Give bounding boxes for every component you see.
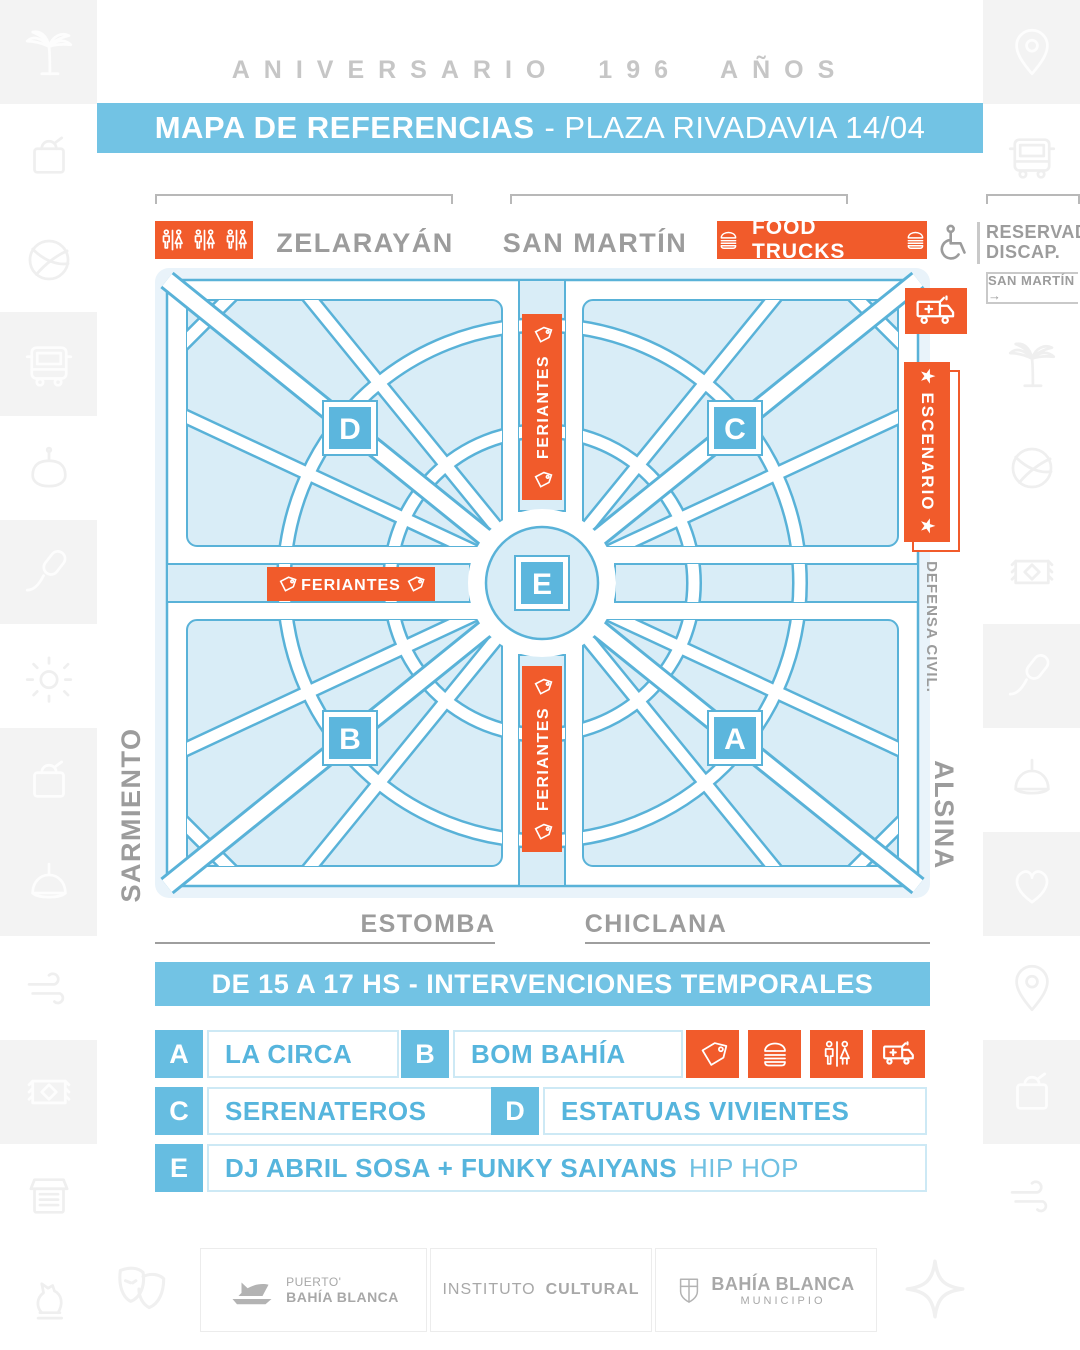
feriantes-banner-top: FERIANTES: [522, 314, 562, 500]
rail-tile: [983, 104, 1080, 208]
street-label-estomba: ESTOMBA: [323, 910, 533, 939]
shopping-bag-icon: [1003, 1063, 1061, 1121]
bus-icon: [1003, 127, 1061, 185]
san-martin-direction-note: SAN MARTÍN →: [986, 272, 1078, 304]
rail-tile: [983, 1040, 1080, 1144]
logo-bahia-blanca-municipio: BAHÍA BLANCA MUNICIPIO: [655, 1248, 877, 1332]
street-label-chiclana: CHICLANA: [551, 910, 761, 939]
anniversary-kicker: ANIVERSARIO 196 AÑOS: [97, 56, 983, 85]
port-ship-logo-icon: [228, 1273, 276, 1307]
street-underline: [155, 942, 495, 944]
palm-tree-icon: [20, 23, 78, 81]
rail-tile: [0, 0, 97, 104]
street-bracket: [155, 194, 453, 204]
rail-tile: [0, 728, 97, 832]
microphone-icon: [20, 543, 78, 601]
shopping-bag-icon: [20, 127, 78, 185]
shopping-bag-icon: [20, 751, 78, 809]
bus-icon: [20, 335, 78, 393]
street-label-alsina: ALSINA: [929, 665, 959, 965]
ambulance-icon: [882, 1038, 916, 1070]
municipal-crest-icon: [677, 1275, 701, 1305]
cooking-pot-icon: [20, 439, 78, 497]
rail-tile: [0, 104, 97, 208]
stage-label: ★ ESCENARIO ★: [917, 369, 937, 536]
burger-icon: [717, 228, 740, 252]
svg-text:D: D: [339, 413, 361, 446]
street-bracket: [986, 194, 1080, 204]
legend-restrooms-box: [810, 1030, 863, 1078]
legend-letter-e: E: [155, 1144, 203, 1192]
event-map-poster: ANIVERSARIO 196 AÑOS MAPA DE REFERENCIAS…: [0, 0, 1080, 1350]
street-label-sarmiento: SARMIENTO: [116, 665, 146, 965]
rail-tile: [0, 520, 97, 624]
legend-item-serenateros: SERENATEROS: [207, 1087, 499, 1135]
divider: [977, 222, 980, 264]
rail-tile: [0, 1248, 97, 1350]
rail-tile: [983, 1144, 1080, 1248]
legend-tag-box: [686, 1030, 739, 1078]
basketball-icon: [1003, 439, 1061, 497]
ambulance-icon: [915, 295, 957, 327]
rail-tile: [983, 728, 1080, 832]
chess-knight-icon: [20, 1271, 78, 1329]
street-underline: [585, 942, 930, 944]
svg-text:B: B: [339, 723, 361, 756]
rail-tile: [983, 312, 1080, 416]
reserved-disabled-label: RESERVADO DISCAP.: [986, 222, 1080, 262]
rail-tile: [0, 936, 97, 1040]
schedule-banner: DE 15 A 17 HS - INTERVENCIONES TEMPORALE…: [155, 962, 930, 1006]
rail-tile: [983, 624, 1080, 728]
theater-masks-icon: [108, 1256, 174, 1322]
location-pin-icon: [1003, 23, 1061, 81]
microphone-icon: [1003, 647, 1061, 705]
palm-tree-icon: [1003, 335, 1061, 393]
marker-E: E: [515, 556, 569, 610]
marker-D: D: [323, 401, 377, 455]
legend-letter-d: D: [491, 1087, 539, 1135]
heart-icon: [1003, 855, 1061, 913]
logo-puerto-bahia-blanca: PUERTO' BAHÍA BLANCA: [200, 1248, 427, 1332]
burger-icon: [904, 228, 927, 252]
rail-tile: [983, 832, 1080, 936]
restrooms-icon: [820, 1038, 854, 1070]
street-label-san-martin: SAN MARTÍN: [490, 228, 700, 259]
wind-icon: [1003, 1167, 1061, 1225]
hanging-lamp-icon: [20, 855, 78, 913]
svg-text:E: E: [532, 568, 552, 601]
svg-text:A: A: [724, 723, 746, 756]
tag-icon: [692, 1034, 733, 1073]
legend-item-bom-bahia: BOM BAHÍA: [453, 1030, 683, 1078]
restrooms-box: [155, 221, 253, 259]
decorative-rail-left: [0, 0, 97, 1350]
feriantes-banner-bottom: FERIANTES: [522, 666, 562, 852]
market-truck-icon: [20, 1167, 78, 1225]
title-banner: MAPA DE REFERENCIAS - PLAZA RIVADAVIA 14…: [97, 103, 983, 153]
basketball-icon: [20, 231, 78, 289]
plaza-map: D C B A E: [155, 268, 930, 898]
rail-tile: [0, 832, 97, 936]
marker-C: C: [708, 401, 762, 455]
svg-text:FERIANTES: FERIANTES: [535, 355, 552, 459]
star-pattern-icon: [898, 1252, 972, 1326]
food-trucks-banner: FOOD TRUCKS: [717, 221, 927, 259]
restrooms-icon: [191, 228, 218, 252]
wheelchair-icon: [931, 223, 973, 265]
svg-text:FERIANTES: FERIANTES: [301, 577, 401, 594]
rail-tile: [983, 416, 1080, 520]
rug-icon: [20, 1063, 78, 1121]
rail-tile: [983, 936, 1080, 1040]
hanging-lamp-icon: [1003, 751, 1061, 809]
rail-tile: [0, 1144, 97, 1248]
location-pin-icon: [1003, 959, 1061, 1017]
restrooms-icon: [223, 228, 250, 252]
marker-A: A: [708, 711, 762, 765]
ambulance-box: [905, 288, 967, 334]
legend-letter-a: A: [155, 1030, 203, 1078]
logo-instituto-cultural: INSTITUTO CULTURAL: [430, 1248, 652, 1332]
sun-icon: [20, 647, 78, 705]
dj-names: DJ ABRIL SOSA + FUNKY SAIYANS: [225, 1153, 677, 1184]
rail-tile: [983, 520, 1080, 624]
rail-tile: [0, 624, 97, 728]
rail-tile: [983, 1248, 1080, 1350]
food-trucks-label: FOOD TRUCKS: [752, 216, 892, 264]
rail-tile: [0, 208, 97, 312]
restrooms-icon: [159, 228, 186, 252]
burger-icon: [758, 1038, 792, 1070]
legend-item-dj: DJ ABRIL SOSA + FUNKY SAIYANS HIP HOP: [207, 1144, 927, 1192]
legend-burger-box: [748, 1030, 801, 1078]
rail-tile: [0, 312, 97, 416]
rail-tile: [0, 1040, 97, 1144]
title-bold: MAPA DE REFERENCIAS: [155, 110, 535, 146]
street-label-zelarayan: ZELARAYÁN: [260, 228, 470, 259]
rail-tile: [0, 416, 97, 520]
stage-banner: ★ ESCENARIO ★: [904, 362, 950, 542]
plaza-map-svg: D C B A E: [155, 268, 930, 898]
street-bracket: [510, 194, 848, 204]
title-rest: - PLAZA RIVADAVIA 14/04: [545, 110, 926, 146]
legend-item-estatuas: ESTATUAS VIVIENTES: [543, 1087, 927, 1135]
svg-text:FERIANTES: FERIANTES: [535, 707, 552, 811]
rug-icon: [1003, 543, 1061, 601]
feriantes-banner-left: FERIANTES: [267, 567, 435, 601]
legend-item-la-circa: LA CIRCA: [207, 1030, 399, 1078]
wind-icon: [20, 959, 78, 1017]
svg-text:C: C: [724, 413, 746, 446]
legend-ambulance-box: [872, 1030, 925, 1078]
marker-B: B: [323, 711, 377, 765]
legend-letter-b: B: [401, 1030, 449, 1078]
dj-genre: HIP HOP: [689, 1153, 799, 1184]
legend-letter-c: C: [155, 1087, 203, 1135]
rail-tile: [983, 0, 1080, 104]
